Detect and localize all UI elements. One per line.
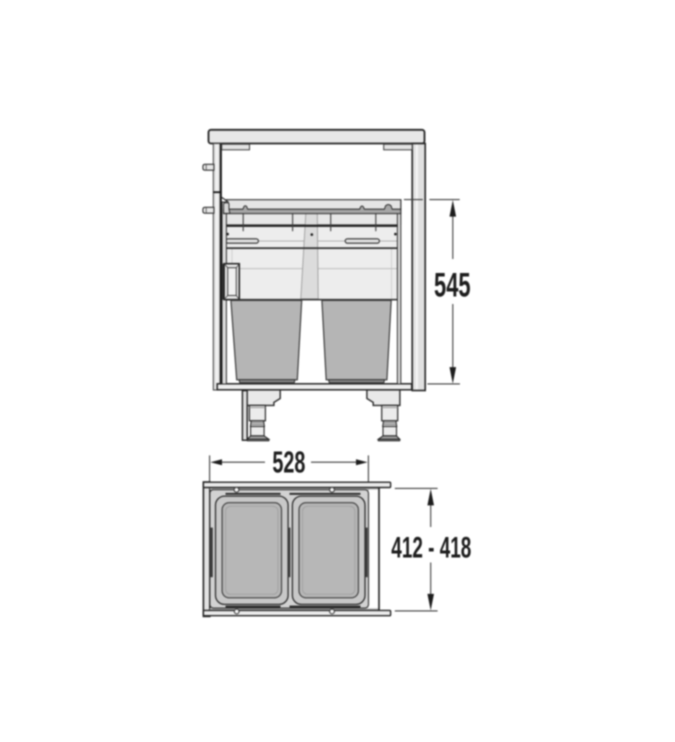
svg-text:528: 528 xyxy=(272,447,305,480)
svg-text:545: 545 xyxy=(434,267,471,305)
svg-text:412 - 418: 412 - 418 xyxy=(391,532,471,565)
